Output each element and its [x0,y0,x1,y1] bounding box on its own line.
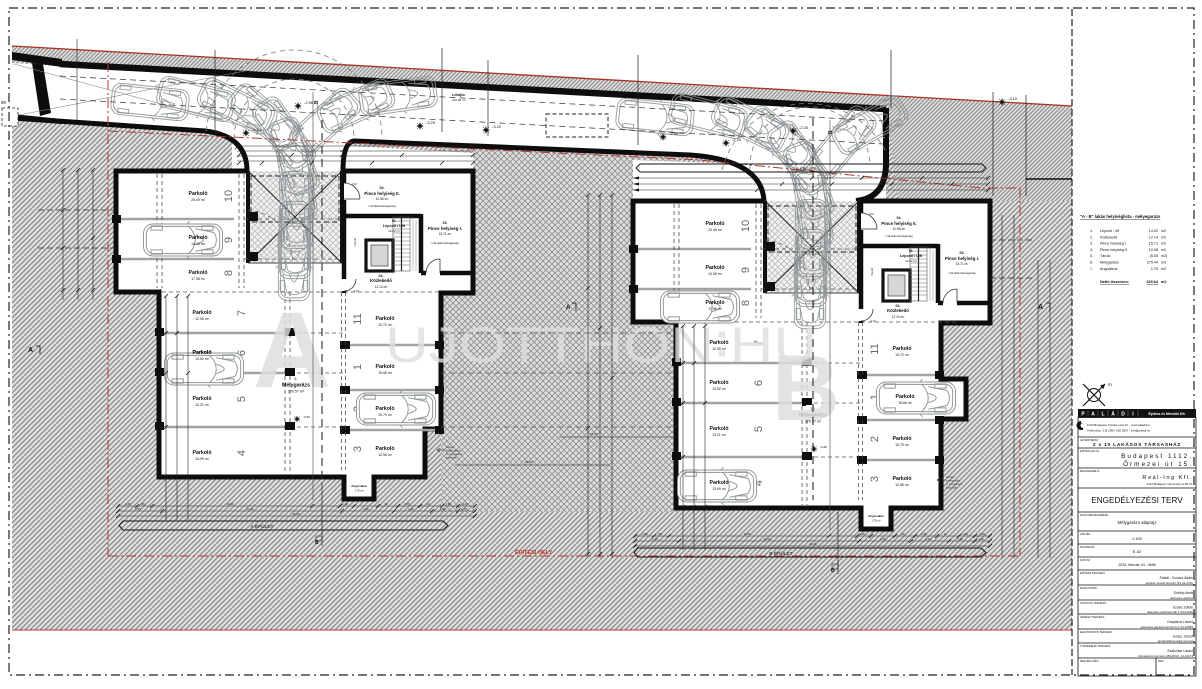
svg-text:Pince helyiség I.: Pince helyiség I. [1100,242,1127,246]
svg-text:1.75: 1.75 [1151,267,1158,271]
svg-text:Angolakna: Angolakna [1100,267,1118,271]
svg-text:Paládi - Kovács Ádám: Paládi - Kovács Ádám [1160,576,1194,580]
svg-text:1.: 1. [1090,229,1093,233]
svg-text:Erdélyi Anett: Erdélyi Anett [1174,591,1193,595]
svg-text:Őrmezei út 15.: Őrmezei út 15. [1123,459,1193,468]
svg-text:2.15: 2.15 [925,537,931,541]
svg-text:1:100: 1:100 [1132,536,1143,541]
svg-text:2 x 10 LAKÁSOS TÁRSASHÁZ: 2 x 10 LAKÁSOS TÁRSASHÁZ [1093,441,1181,448]
svg-text:1.38: 1.38 [445,502,451,506]
svg-text:-3.10: -3.10 [1008,96,1018,101]
svg-text:4. mélygarázs: 4. mélygarázs [446,452,463,456]
svg-text:Jurász József: Jurász József [1172,635,1193,639]
svg-text:Szalontás László: Szalontás László [1167,649,1193,653]
svg-text:É-02: É-02 [1133,549,1142,554]
svg-text:tűzvédelmi mérnök I-081/2013,: tűzvédelmi mérnök I-081/2013, 13-14174 [1138,654,1193,658]
svg-text:21.35: 21.35 [340,149,348,153]
svg-text:2.45: 2.45 [404,502,410,506]
svg-text:REV:: REV: [1158,659,1164,663]
svg-text:10.83: 10.83 [227,502,234,506]
svg-text:A: A [1038,304,1043,311]
svg-text:Telefon/fax: 215 2654, 655 080: Telefon/fax: 215 2654, 655 0807 - info@p… [1087,429,1151,433]
svg-text:1.38: 1.38 [962,532,968,536]
svg-text:közlekedőbe: közlekedőbe [946,479,961,483]
svg-text:-3.20: -3.20 [252,127,262,132]
svg-text:1.15: 1.15 [859,532,865,536]
svg-text:1112 Budapest, Neszmélyi út 68: 1112 Budapest, Neszmélyi út 68-70. [1147,482,1193,486]
svg-text:B: B [314,100,320,104]
svg-text:m2: m2 [1161,261,1166,265]
svg-text:3.: 3. [1090,242,1093,246]
svg-text:20: 20 [384,502,388,506]
svg-text:1.50: 1.50 [461,507,467,511]
svg-text:1094 Budapest, Tűzoltó utca 23: 1094 Budapest, Tűzoltó utca 23. - www.pa… [1087,423,1150,427]
svg-text:5.: 5. [1090,254,1093,258]
svg-text:11.80: 11.80 [247,507,254,511]
svg-text:A: A [1091,412,1095,418]
svg-text:1.20: 1.20 [462,502,468,506]
svg-text:4. mélygarázs: 4. mélygarázs [946,482,963,486]
svg-text:okleveles építész: okleveles építész [1170,596,1194,600]
svg-text:Tároló: Tároló [1100,254,1110,258]
svg-text:1.20: 1.20 [979,532,985,536]
svg-text:épületvillamossági tervező: épületvillamossági tervező [1158,639,1194,643]
svg-text:1.25: 1.25 [135,507,141,511]
svg-text:15.00: 15.00 [525,460,533,464]
svg-text:ÉPÍTÉSI HELY: ÉPÍTÉSI HELY [515,548,553,556]
svg-text:okleveles gépészmérnök G-T-13-: okleveles gépészmérnök G-T-13-10585 [1140,625,1193,629]
svg-text:kapcsolat: kapcsolat [946,486,957,490]
svg-text:m: m [1108,382,1112,387]
svg-text:7.: 7. [1090,267,1093,271]
svg-text:Parkoló: Parkoló [895,394,914,400]
svg-text:329.64: 329.64 [1146,280,1159,284]
svg-text:A ÉPÜLET: A ÉPÜLET [251,523,274,530]
svg-text:Parkoló: Parkoló [709,480,728,486]
svg-text:Szabó Zoltán: Szabó Zoltán [1173,606,1193,610]
svg-text:11.90: 11.90 [764,537,771,541]
svg-text:Közlekedő: Közlekedő [1100,235,1117,239]
svg-text:Parkoló: Parkoló [188,235,207,241]
svg-text:Pince helyiség II.: Pince helyiség II. [1100,248,1128,252]
svg-text:Mélygarázs alaprajz: Mélygarázs alaprajz [1117,520,1156,525]
svg-text:kapcsolat: kapcsolat [446,456,457,460]
svg-text:építész vezető tervező: É1 01-: építész vezető tervező: É1 01-270é [1146,580,1194,585]
svg-text:15.71: 15.71 [1149,242,1158,246]
svg-text:(5.65: (5.65 [1150,254,1158,258]
svg-text:m2: m2 [1161,229,1166,233]
svg-text:B ÉPÜLET: B ÉPÜLET [769,550,792,557]
svg-text:DÁTUM:: DÁTUM: [1080,558,1091,562]
svg-text:okleveles építőmérnök T 03-012: okleveles építőmérnök T 03-0129é [1147,610,1193,614]
svg-text:B: B [828,130,834,134]
svg-text:Parkoló: Parkoló [705,300,724,306]
svg-text:14.02: 14.02 [1149,229,1158,233]
svg-text:-2.30: -2.30 [669,131,679,136]
svg-text:A: A [566,305,571,311]
svg-text:1.60: 1.60 [957,537,963,541]
svg-text:1.05: 1.05 [125,502,131,506]
svg-text:1.15: 1.15 [342,502,348,506]
svg-text:D: D [1121,412,1125,418]
svg-text:2025. február 24., hétfő: 2025. február 24., hétfő [1118,563,1155,567]
svg-text:6.: 6. [1090,261,1093,265]
svg-text:"A - B" lakás helyiséglista -: "A - B" lakás helyiséglista - mélyegaráz… [1080,214,1161,219]
svg-text:Mélygarázs: Mélygarázs [1100,261,1119,265]
svg-text:275.44: 275.44 [1147,261,1158,265]
svg-text:10.83: 10.83 [744,532,751,536]
svg-text:12.14: 12.14 [1149,235,1158,239]
svg-text:Parkoló: Parkoló [192,350,211,356]
svg-text:2.35: 2.35 [880,537,886,541]
svg-text:232.06 m²: 232.06 m² [452,98,466,102]
svg-text:RAJZSZÁM:: RAJZSZÁM: [1080,545,1095,549]
svg-text:2.15: 2.15 [408,507,414,511]
svg-text:Budapest 1112,: Budapest 1112, [1121,453,1193,460]
svg-text:m2: m2 [1161,235,1166,239]
svg-text:-2.96: -2.96 [304,100,314,105]
svg-text:Garázs: Garázs [946,475,955,479]
svg-text:13.99 m²: 13.99 m² [712,487,727,491]
svg-text:Á: Á [1111,411,1115,418]
svg-text:13.52 m²: 13.52 m² [195,357,210,361]
svg-text:-3.20: -3.20 [426,120,436,125]
svg-text:Építész és Mérnöki Kft.: Építész és Mérnöki Kft. [1148,411,1185,416]
svg-text:MUNKATÁRS:: MUNKATÁRS: [1080,586,1098,590]
svg-text:Lépcső - lift: Lépcső - lift [1100,229,1119,233]
svg-text:m2): m2) [1161,254,1167,258]
svg-text:közlekedőbe: közlekedőbe [446,449,461,453]
svg-text:-2.20: -2.20 [799,125,809,130]
svg-text:m2: m2 [1161,280,1167,284]
svg-text:B ÉPÜLET: B ÉPÜLET [796,167,817,172]
svg-text:Lehajtó: Lehajtó [452,93,466,97]
svg-text:21.35: 21.35 [293,512,300,516]
svg-text:-3.20: -3.20 [492,124,502,129]
svg-text:4.: 4. [1090,248,1093,252]
svg-text:L: L [1101,412,1104,418]
svg-text:Csapláros László: Csapláros László [1167,620,1193,624]
svg-text:m2: m2 [1161,267,1166,271]
svg-text:A: A [28,347,33,354]
svg-text:15.66 m²: 15.66 m² [898,401,913,405]
svg-text:10.58: 10.58 [1149,248,1158,252]
svg-text:10: 10 [943,532,947,536]
svg-text:A: A [253,289,331,410]
svg-text:10: 10 [426,502,430,506]
svg-text:2.35: 2.35 [363,507,369,511]
svg-text:1.25: 1.25 [652,537,658,541]
svg-text:1.50: 1.50 [978,537,984,541]
svg-text:2.: 2. [1090,235,1093,239]
svg-text:Reál-Ing Kft.: Reál-Ing Kft. [1142,475,1193,481]
svg-text:20: 20 [901,532,905,536]
svg-text:m2: m2 [1161,248,1166,252]
svg-text:90: 90 [1,100,7,105]
svg-text:Parkoló: Parkoló [375,406,394,412]
svg-text:14.26 m²: 14.26 m² [191,242,206,246]
svg-text:80: 80 [658,532,662,536]
svg-text:21.45: 21.45 [810,542,817,546]
svg-text:17.98 m²: 17.98 m² [708,307,723,311]
svg-text:2.45: 2.45 [921,532,927,536]
svg-text:1.05: 1.05 [642,532,648,536]
svg-text:15.79 m²: 15.79 m² [378,413,393,417]
svg-text:UJOTTHON∶HU: UJOTTHON∶HU [385,317,817,373]
svg-text:-2.20: -2.20 [732,137,742,142]
svg-text:1.60: 1.60 [440,507,446,511]
svg-text:Garázs: Garázs [446,445,455,449]
svg-text:15.00: 15.00 [590,432,598,436]
svg-text:m2: m2 [1161,242,1166,246]
svg-text:ENGEDÉLYEZÉSI TERV: ENGEDÉLYEZÉSI TERV [1091,495,1183,505]
svg-text:Nettó összesen:: Nettó összesen: [1100,280,1129,284]
svg-text:80: 80 [141,502,145,506]
